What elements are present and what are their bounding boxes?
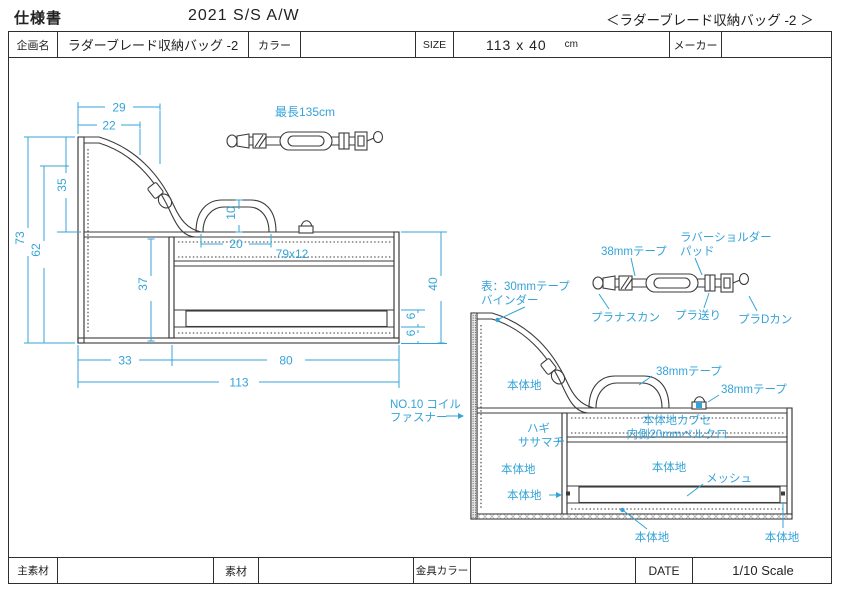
main-material-value-cell bbox=[58, 558, 214, 583]
label-strap-pad-2: パッド bbox=[680, 245, 715, 258]
maker-value-cell bbox=[722, 32, 833, 57]
dim-top-w2: 22 bbox=[102, 119, 116, 133]
label-binder-2: バインダー bbox=[481, 293, 539, 307]
dim-left-outer: 73 bbox=[13, 231, 27, 245]
size-unit: cm bbox=[565, 39, 578, 50]
dim-handle-w: 20 bbox=[229, 237, 243, 251]
size-value: 113 x 40 bbox=[486, 37, 547, 53]
season-title: 2021 S/S A/W bbox=[188, 7, 300, 25]
strap-detail-view bbox=[593, 274, 749, 293]
plan-label-cell: 企画名 bbox=[9, 32, 58, 57]
label-tape-handle: 38mmテープ bbox=[656, 365, 722, 378]
dim-right-h: 40 bbox=[426, 277, 440, 291]
dim-top-w1: 29 bbox=[112, 101, 126, 115]
label-body-center: 本体地 bbox=[652, 460, 687, 474]
label-strap-pad-1: ラバーショルダー bbox=[680, 230, 772, 244]
dim-left-upper: 35 bbox=[55, 178, 69, 192]
label-hagi: ハギ bbox=[527, 422, 550, 435]
label-body-left-small: 本体地 bbox=[507, 488, 542, 502]
dim-flap-size: 79x12 bbox=[276, 247, 309, 261]
label-kabuse-2: 内側20mmベルクロ bbox=[627, 427, 728, 441]
label-sasamachi: ササマチ bbox=[518, 436, 564, 449]
label-body-bottom-center: 本体地 bbox=[635, 530, 670, 544]
label-strap-tape: 38mmテープ bbox=[601, 245, 667, 258]
label-strap-dkan: プラDカン bbox=[738, 313, 792, 326]
dim-total-w: 113 bbox=[229, 376, 248, 390]
color-label-cell: カラー bbox=[249, 32, 301, 57]
label-body-upper: 本体地 bbox=[507, 378, 542, 392]
dim-bottom-band-h: 6 bbox=[404, 329, 418, 336]
material-value-cell bbox=[259, 558, 414, 583]
hardware-color-label-cell: 金具カラー bbox=[414, 558, 471, 583]
plan-value-cell: ラダーブレード収納バッグ -2 bbox=[58, 32, 249, 57]
label-binder-1: 表：30mmテープ bbox=[481, 279, 570, 293]
hardware-color-value-cell bbox=[471, 558, 636, 583]
product-ref: ＜ラダーブレード収納バッグ -2 ＞ bbox=[606, 9, 814, 29]
material-label-cell: 素材 bbox=[214, 558, 259, 583]
dim-bottom-right: 80 bbox=[279, 354, 293, 368]
info-row: 企画名 ラダーブレード収納バッグ -2 カラー SIZE 113 x 40 cm… bbox=[8, 31, 832, 58]
label-strap-okuri: プラ送り bbox=[675, 308, 721, 322]
label-body-left: 本体地 bbox=[501, 462, 536, 476]
dim-bottom-left: 33 bbox=[118, 354, 132, 368]
label-body-bottom-right: 本体地 bbox=[765, 530, 800, 544]
doc-title: 仕様書 bbox=[14, 7, 62, 28]
bag-material-overlays bbox=[472, 314, 792, 519]
main-material-label-cell: 主素材 bbox=[9, 558, 58, 583]
bag-material-view bbox=[471, 313, 792, 519]
dim-handle-h: 10 bbox=[224, 206, 238, 220]
label-tape-dring: 38mmテープ bbox=[721, 383, 787, 396]
drawing-area: 29 22 35 73 62 37 10 20 79x12 40 6 6 33 … bbox=[8, 58, 832, 557]
label-zipper-1: NO.10 コイル bbox=[390, 399, 461, 411]
strap-max-length-label: 最長135cm bbox=[275, 105, 335, 119]
date-label-cell: DATE bbox=[636, 558, 693, 583]
scale-cell: 1/10 Scale bbox=[693, 558, 833, 583]
strap-top-view bbox=[227, 132, 383, 151]
label-zipper-2: ファスナー bbox=[390, 411, 448, 424]
technical-drawing: 29 22 35 73 62 37 10 20 79x12 40 6 6 33 … bbox=[9, 58, 831, 557]
size-label-cell: SIZE bbox=[416, 32, 454, 57]
color-value-cell bbox=[301, 32, 416, 57]
footer-row: 主素材 素材 金具カラー DATE 1/10 Scale bbox=[8, 557, 832, 584]
dim-inner-h: 37 bbox=[136, 277, 150, 291]
dim-left-mid: 62 bbox=[29, 243, 43, 257]
dimension-labels-left: 29 22 35 73 62 37 10 20 79x12 40 6 6 33 … bbox=[13, 101, 440, 390]
label-kabuse-1: 本体地カブセ bbox=[643, 413, 712, 427]
dim-mesh-h: 6 bbox=[404, 312, 418, 319]
spec-sheet: 仕様書 2021 S/S A/W ＜ラダーブレード収納バッグ -2 ＞ 企画名 … bbox=[0, 0, 842, 595]
size-value-cell: 113 x 40 cm bbox=[454, 32, 670, 57]
label-mesh: メッシュ bbox=[706, 473, 752, 485]
label-strap-nasukan: プラナスカン bbox=[591, 311, 660, 324]
maker-label-cell: メーカー bbox=[670, 32, 722, 57]
